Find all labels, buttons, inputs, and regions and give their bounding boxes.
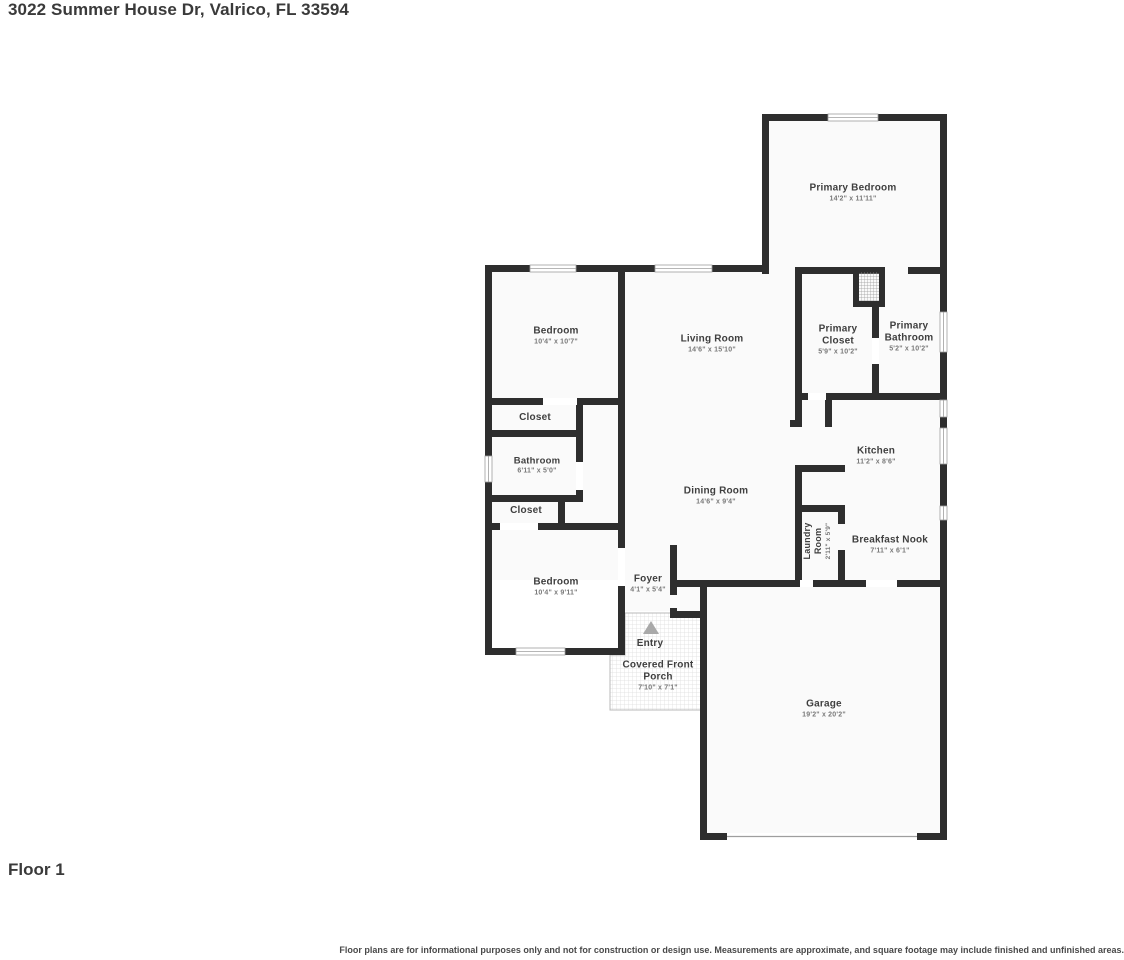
room-label-garage: Garage 19'2" x 20'2" [802,698,846,719]
room-label-primary-bedroom: Primary Bedroom 14'2" x 11'11" [810,182,897,203]
floorplan-page: 3022 Summer House Dr, Valrico, FL 33594 [0,0,1124,960]
floorplan-walls-graphic [0,0,1124,960]
garage-door [727,833,917,840]
room-label-primary-bathroom: Primary Bathroom 5'2" x 10'2" [873,320,945,353]
room-label-bathroom: Bathroom 6'11" x 5'0" [514,456,560,477]
room-label-living-room: Living Room 14'6" x 15'10" [681,333,744,354]
room-label-foyer: Foyer 4'1" x 5'4" [630,573,666,594]
floor-number-label: Floor 1 [8,860,65,880]
shower-hatch [859,272,879,301]
disclaimer-text: Floor plans are for informational purpos… [339,945,1124,955]
room-label-bedroom-top: Bedroom 10'4" x 10'7" [533,325,578,346]
room-label-breakfast-nook: Breakfast Nook 7'11" x 6'1" [852,534,928,555]
room-label-entry: Entry [637,638,664,650]
room-label-dining-room: Dining Room 14'6" x 9'4" [684,485,748,506]
room-label-laundry-room: Laundry Room 2'11" x 5'9" [802,516,832,566]
room-label-primary-closet: Primary Closet 5'9" x 10'2" [807,323,869,356]
room-label-covered-front-porch: Covered Front Porch 7'10" x 7'1" [615,659,701,692]
room-label-kitchen: Kitchen 11'2" x 8'6" [856,445,895,466]
room-label-closet-upper: Closet [519,412,551,424]
floor-plan: Primary Bedroom 14'2" x 11'11" Bedroom 1… [0,0,1124,960]
room-label-bedroom-bottom: Bedroom 10'4" x 9'11" [533,576,578,597]
room-label-closet-lower: Closet [510,505,542,517]
